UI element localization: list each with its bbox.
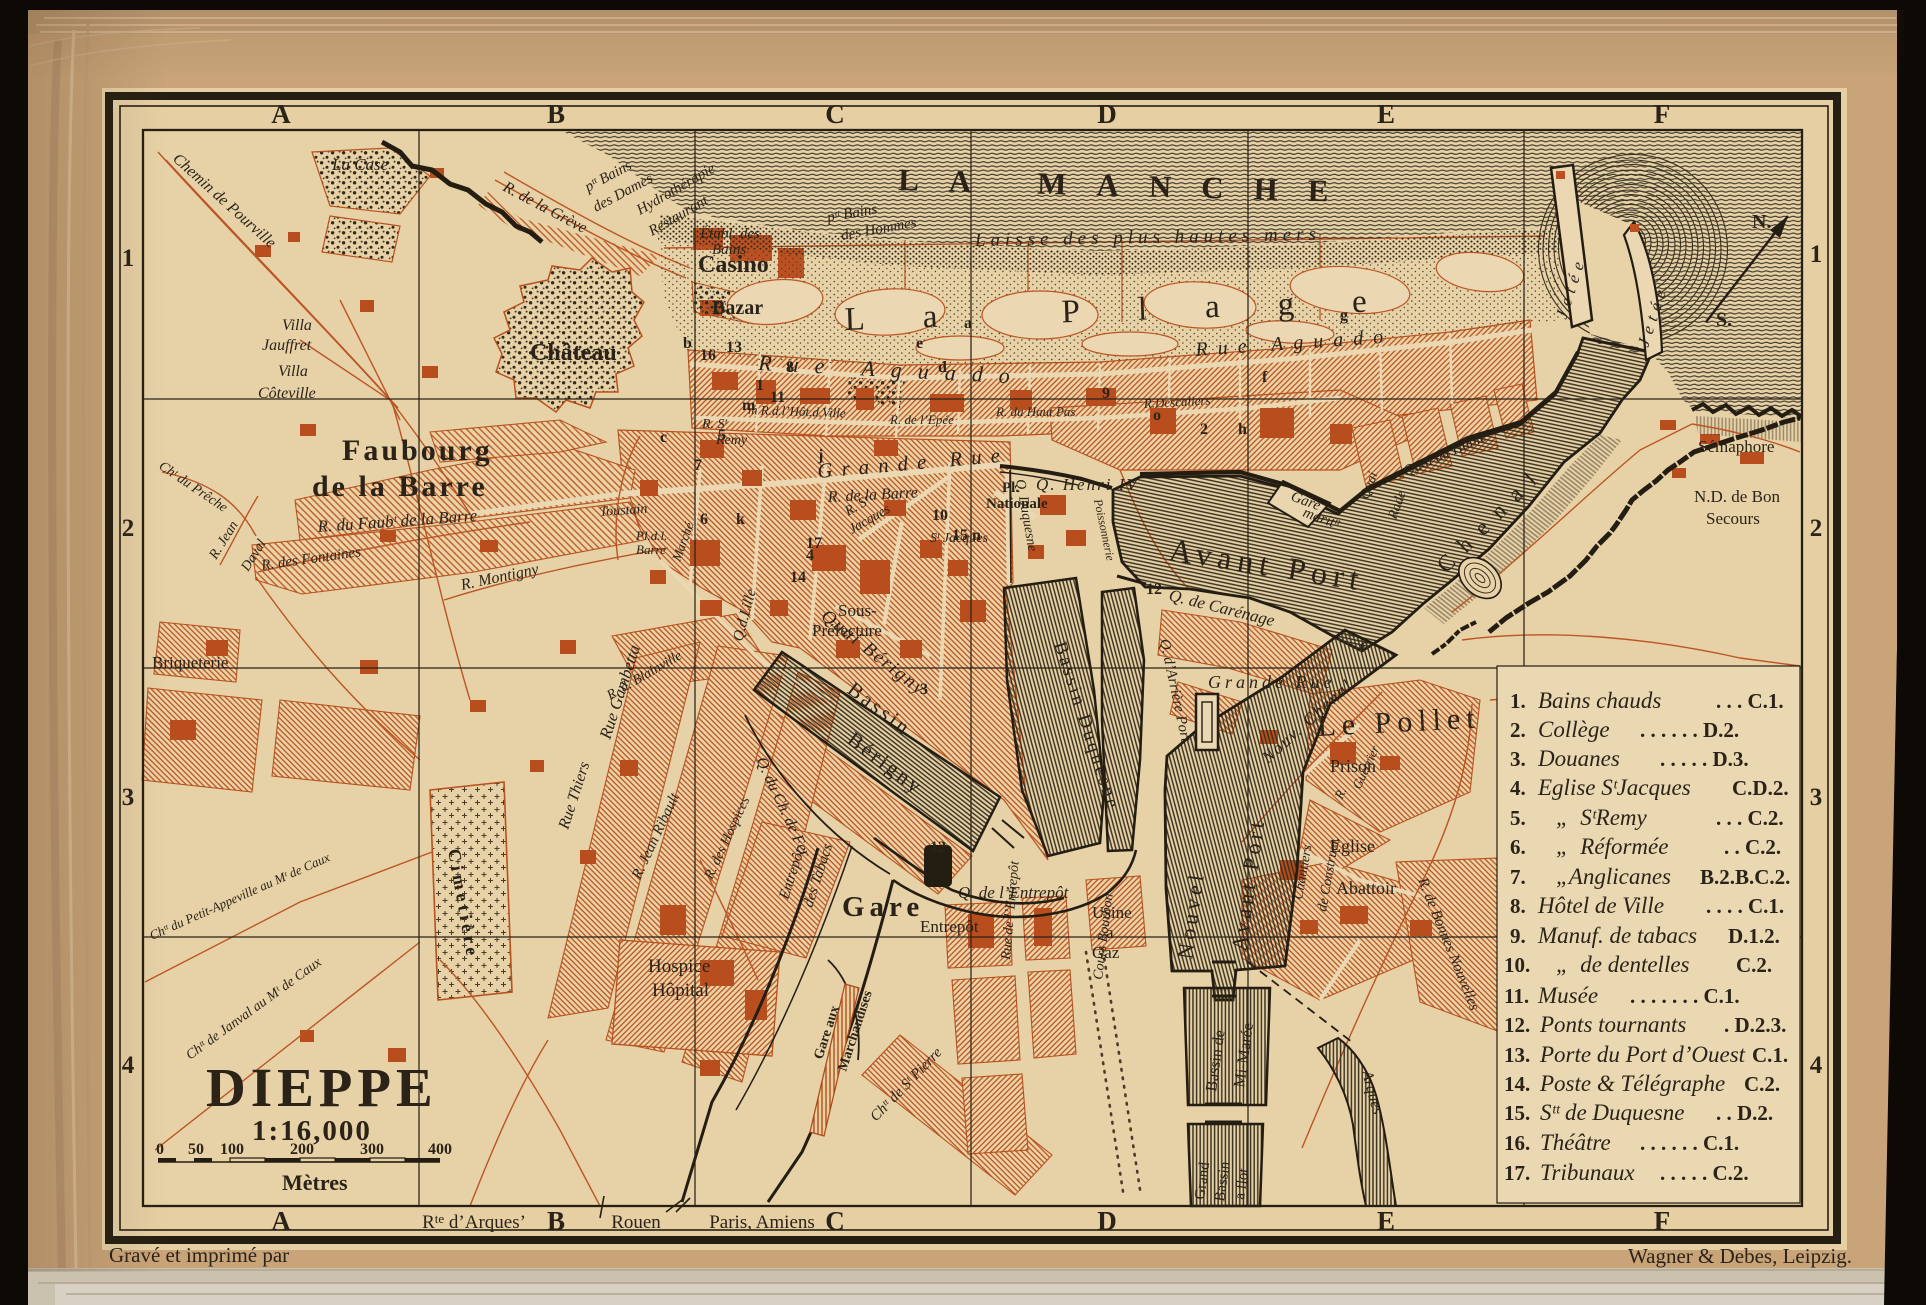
svg-text:Théâtre: Théâtre [1540, 1130, 1611, 1155]
svg-text:N.: N. [1752, 211, 1771, 233]
svg-text:h: h [1238, 421, 1247, 438]
svg-text:4.: 4. [1510, 776, 1526, 800]
svg-text:3: 3 [1810, 784, 1823, 811]
svg-text:50: 50 [188, 1141, 204, 1158]
svg-text:4: 4 [1810, 1052, 1823, 1079]
svg-text:c: c [660, 429, 667, 446]
svg-text:Bains chauds: Bains chauds [1538, 688, 1661, 713]
svg-text:„ Réformée: „ Réformée [1556, 834, 1668, 859]
svg-text:. . . C.2.: . . . C.2. [1716, 806, 1784, 830]
svg-text:Mètres: Mètres [282, 1170, 348, 1195]
svg-text:C: C [825, 1206, 845, 1236]
svg-text:. . . . . . C.1.: . . . . . . C.1. [1640, 1131, 1739, 1155]
svg-text:La Case: La Case [331, 155, 389, 174]
svg-text:Sémaphore: Sémaphore [1698, 437, 1774, 456]
svg-text:7.: 7. [1510, 865, 1526, 889]
svg-text:Eglise SᵗJacques: Eglise SᵗJacques [1537, 775, 1691, 800]
svg-text:14.: 14. [1504, 1072, 1530, 1096]
svg-text:b: b [683, 335, 692, 352]
svg-text:k: k [736, 511, 745, 528]
svg-text:Villa: Villa [278, 363, 308, 380]
svg-text:16.: 16. [1504, 1131, 1530, 1155]
svg-text:Secours: Secours [1706, 509, 1760, 528]
svg-text:C.1.: C.1. [1752, 1043, 1788, 1067]
svg-text:5.: 5. [1510, 806, 1526, 830]
svg-text:E: E [1377, 1206, 1395, 1236]
svg-text:de la Barre: de la Barre [312, 470, 488, 503]
svg-text:5: 5 [718, 427, 726, 444]
svg-text:6.: 6. [1510, 835, 1526, 859]
svg-text:11.: 11. [1504, 984, 1529, 1008]
svg-text:DIEPPE: DIEPPE [206, 1057, 438, 1118]
svg-text:F: F [1654, 99, 1671, 129]
svg-text:N.D. de Bon: N.D. de Bon [1694, 487, 1780, 506]
svg-text:1.: 1. [1510, 689, 1526, 713]
svg-text:Douanes: Douanes [1537, 746, 1620, 771]
svg-text:S.: S. [1716, 309, 1732, 331]
svg-text:Côteville: Côteville [258, 385, 316, 402]
svg-text:c: c [1360, 637, 1367, 654]
svg-text:4: 4 [806, 547, 814, 564]
svg-text:13: 13 [726, 339, 742, 356]
svg-text:m: m [742, 397, 756, 414]
svg-text:9: 9 [1102, 385, 1110, 402]
svg-text:8.: 8. [1510, 894, 1526, 918]
svg-text:j: j [817, 447, 823, 464]
svg-text:F: F [1654, 1206, 1671, 1236]
svg-text:g: g [1340, 307, 1348, 324]
svg-text:. D.2.3.: . D.2.3. [1724, 1013, 1786, 1037]
svg-text:Poste & Télégraphe: Poste & Télégraphe [1539, 1071, 1725, 1096]
svg-text:C: C [825, 99, 845, 129]
svg-text:. . C.2.: . . C.2. [1724, 835, 1781, 859]
svg-text:2: 2 [1810, 515, 1823, 542]
svg-text:Musée: Musée [1537, 983, 1598, 1008]
svg-text:. . . C.1.: . . . C.1. [1716, 689, 1784, 713]
svg-text:16: 16 [700, 347, 716, 364]
svg-text:Faubourg: Faubourg [342, 434, 493, 467]
svg-text:Villa: Villa [282, 317, 312, 334]
svg-text:200: 200 [290, 1141, 314, 1158]
svg-text:6: 6 [700, 511, 708, 528]
svg-text:. . . . . D.3.: . . . . . D.3. [1660, 747, 1749, 771]
svg-text:12.: 12. [1504, 1013, 1530, 1037]
svg-text:Entrepôt: Entrepôt [920, 917, 979, 936]
svg-text:R. du Haut Pas: R. du Haut Pas [995, 404, 1075, 419]
svg-text:2: 2 [1200, 421, 1208, 438]
svg-text:A: A [271, 99, 291, 129]
svg-text:n: n [972, 527, 981, 544]
svg-text:10: 10 [932, 507, 948, 524]
svg-text:B: B [547, 1206, 565, 1236]
svg-text:Hôtel de Ville: Hôtel de Ville [1537, 893, 1664, 918]
svg-text:A: A [271, 1206, 291, 1236]
svg-text:7: 7 [694, 457, 702, 474]
svg-text:Grande Rue: Grande Rue [1208, 672, 1335, 692]
svg-text:Wagner & Debes, Leipzig.: Wagner & Debes, Leipzig. [1628, 1244, 1852, 1268]
svg-text:D: D [1097, 1206, 1117, 1236]
svg-text:Établ. des: Établ. des [699, 225, 760, 242]
svg-text:Hospice: Hospice [648, 956, 710, 977]
svg-text:D.1.2.: D.1.2. [1728, 924, 1780, 948]
svg-text:9.: 9. [1510, 924, 1526, 948]
svg-text:12: 12 [1146, 581, 1162, 598]
svg-text:17.: 17. [1504, 1161, 1530, 1185]
svg-text:o: o [1153, 407, 1161, 424]
svg-text:100: 100 [220, 1141, 244, 1158]
svg-text:Sᵗᵗ de Duquesne: Sᵗᵗ de Duquesne [1540, 1100, 1684, 1125]
svg-text:. . . . . C.2.: . . . . . C.2. [1660, 1161, 1749, 1185]
svg-text:Hôpital: Hôpital [652, 980, 709, 1001]
svg-text:Porte du Port d’Ouest: Porte du Port d’Ouest [1539, 1042, 1746, 1067]
svg-text:Q. Henri IV: Q. Henri IV [1036, 475, 1139, 494]
svg-text:Rouen: Rouen [611, 1212, 661, 1233]
svg-text:8: 8 [786, 359, 794, 376]
svg-text:E: E [1377, 99, 1395, 129]
svg-text:C.D.2.: C.D.2. [1732, 776, 1789, 800]
svg-text:Abattoir: Abattoir [1336, 878, 1396, 898]
svg-text:Jauffret: Jauffret [262, 337, 312, 354]
svg-text:1: 1 [756, 377, 764, 394]
svg-text:3: 3 [920, 681, 928, 698]
svg-text:10.: 10. [1504, 953, 1530, 977]
svg-text:1: 1 [1810, 241, 1823, 268]
svg-text:300: 300 [360, 1141, 384, 1158]
svg-text:B.2.B.C.2.: B.2.B.C.2. [1700, 865, 1790, 889]
svg-text:400: 400 [428, 1141, 452, 1158]
svg-text:B: B [547, 99, 565, 129]
svg-text:15.: 15. [1504, 1101, 1530, 1125]
svg-text:Paris, Amiens: Paris, Amiens [709, 1212, 815, 1233]
svg-text:15: 15 [952, 527, 968, 544]
svg-text:11: 11 [770, 389, 785, 406]
svg-text:Ponts tournants: Ponts tournants [1539, 1012, 1686, 1037]
svg-text:Bazar: Bazar [712, 297, 763, 319]
svg-text:Gare: Gare [842, 891, 924, 923]
svg-text:. . . . . . . C.1.: . . . . . . . C.1. [1630, 984, 1740, 1008]
svg-text:C.2.: C.2. [1736, 953, 1772, 977]
svg-text:Collège: Collège [1538, 717, 1610, 742]
svg-text:14: 14 [790, 569, 806, 586]
svg-text:f: f [1262, 369, 1268, 386]
svg-text:2.: 2. [1510, 718, 1526, 742]
svg-text:Barre: Barre [636, 542, 666, 557]
svg-text:d: d [938, 359, 947, 376]
svg-text:Manuf. de tabacs: Manuf. de tabacs [1537, 923, 1697, 948]
svg-text:D: D [1097, 99, 1117, 129]
svg-text:. . . . . . D.2.: . . . . . . D.2. [1640, 718, 1739, 742]
svg-text:Casino: Casino [698, 252, 769, 278]
svg-text:Château: Château [530, 340, 617, 366]
svg-text:„Anglicanes: „Anglicanes [1556, 864, 1671, 889]
svg-text:12: 12 [930, 839, 946, 856]
svg-text:13.: 13. [1504, 1043, 1530, 1067]
svg-text:3.: 3. [1510, 747, 1526, 771]
svg-text:. . . . C.1.: . . . . C.1. [1706, 894, 1784, 918]
svg-text:a: a [964, 315, 972, 332]
svg-text:. . D.2.: . . D.2. [1716, 1101, 1773, 1125]
svg-text:C.2.: C.2. [1744, 1072, 1780, 1096]
svg-text:R. de l’Epée: R. de l’Epée [889, 412, 954, 427]
svg-text:„ de dentelles: „ de dentelles [1556, 952, 1690, 977]
svg-text:e: e [916, 335, 923, 352]
svg-text:Pl.d.l.: Pl.d.l. [635, 528, 667, 543]
svg-text:„ SᵗRemy: „ SᵗRemy [1556, 805, 1648, 830]
svg-text:Tribunaux: Tribunaux [1540, 1160, 1635, 1185]
